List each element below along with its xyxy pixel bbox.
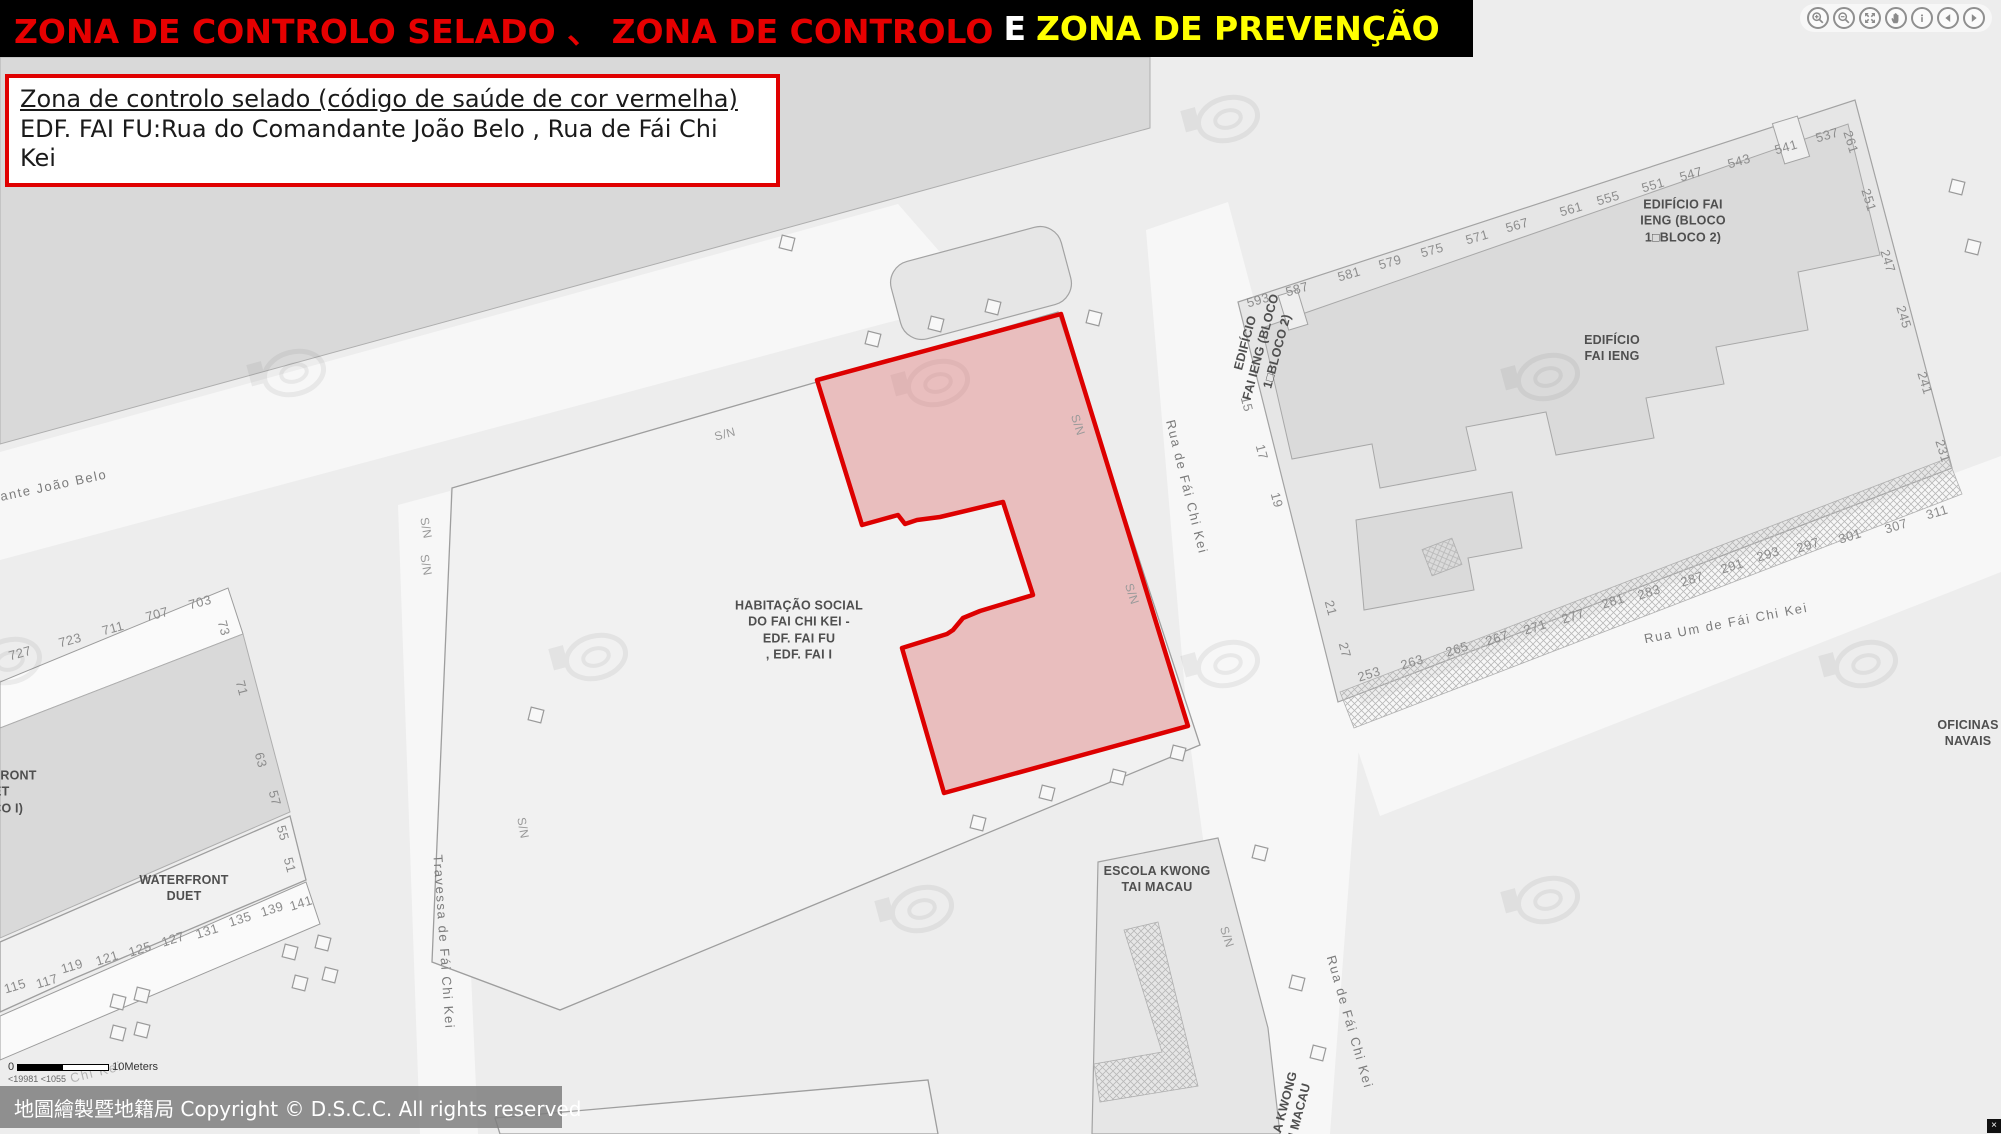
tree-planter-icon (1965, 239, 1981, 255)
tree-planter-icon (315, 935, 331, 951)
tree-planter-icon (292, 975, 308, 991)
tree-planter-icon (1039, 785, 1055, 801)
tree-planter-icon (110, 1025, 126, 1041)
tree-planter-icon (779, 235, 795, 251)
corner-marker-icon[interactable]: × (1987, 1119, 2001, 1133)
scale-sub-text: <19981 <1055 (8, 1074, 158, 1084)
tree-planter-icon (322, 967, 338, 983)
tree-planter-icon (1252, 845, 1268, 861)
scale-zero-label: 0 (8, 1061, 14, 1073)
info-icon (1915, 11, 1929, 25)
tree-planter-icon (110, 994, 126, 1010)
tree-planter-icon (865, 331, 881, 347)
zoom-extent-button[interactable] (1859, 7, 1881, 29)
arrow-right-icon (1967, 11, 1981, 25)
tree-planter-icon (1086, 310, 1102, 326)
tree-planter-icon (1110, 769, 1126, 785)
pan-button[interactable] (1885, 7, 1907, 29)
copyright-text: 地圖繪製暨地籍局 Copyright © D.S.C.C. All rights… (14, 1093, 581, 1122)
tree-planter-icon (970, 815, 986, 831)
tree-planter-icon (1949, 179, 1965, 195)
header-title-and: E (993, 9, 1036, 48)
tree-planter-icon (1170, 745, 1186, 761)
tree-planter-icon (1310, 1045, 1326, 1061)
info-box-title: Zona de controlo selado (código de saúde… (20, 85, 765, 113)
tree-planter-icon (928, 316, 944, 332)
map-toolbar (1800, 4, 1992, 32)
header-title-red: ZONA DE CONTROLO SELADO 、 ZONA DE CONTRO… (14, 5, 993, 53)
tree-planter-icon (282, 944, 298, 960)
zoom-out-icon (1837, 11, 1851, 25)
sealed-zone-info-box: Zona de controlo selado (código de saúde… (5, 74, 780, 187)
full-extent-icon (1863, 11, 1877, 25)
tree-planter-icon (985, 299, 1001, 315)
scale-bar-graphic (17, 1064, 109, 1071)
zoom-in-icon (1811, 11, 1825, 25)
tree-planter-icon (528, 707, 544, 723)
next-view-button[interactable] (1963, 7, 1985, 29)
pan-hand-icon (1889, 11, 1903, 25)
header-title-bar: ZONA DE CONTROLO SELADO 、 ZONA DE CONTRO… (0, 0, 1473, 57)
scale-bar: 0 10Meters <19981 <1055 (8, 1061, 158, 1084)
tree-planter-icon (134, 987, 150, 1003)
tree-planter-icon (1289, 975, 1305, 991)
zoom-out-button[interactable] (1833, 7, 1855, 29)
copyright-bar: 地圖繪製暨地籍局 Copyright © D.S.C.C. All rights… (0, 1086, 562, 1128)
scale-distance-label: 10Meters (112, 1061, 158, 1073)
zoom-in-button[interactable] (1807, 7, 1829, 29)
info-box-body: EDF. FAI FU:Rua do Comandante João Belo … (20, 115, 732, 174)
header-title-yellow: ZONA DE PREVENÇÃO (1036, 9, 1440, 48)
tree-planter-icon (134, 1022, 150, 1038)
arrow-left-icon (1941, 11, 1955, 25)
previous-view-button[interactable] (1937, 7, 1959, 29)
map-application: 5935875815795755715675615555515475435415… (0, 0, 2001, 1134)
identify-button[interactable] (1911, 7, 1933, 29)
